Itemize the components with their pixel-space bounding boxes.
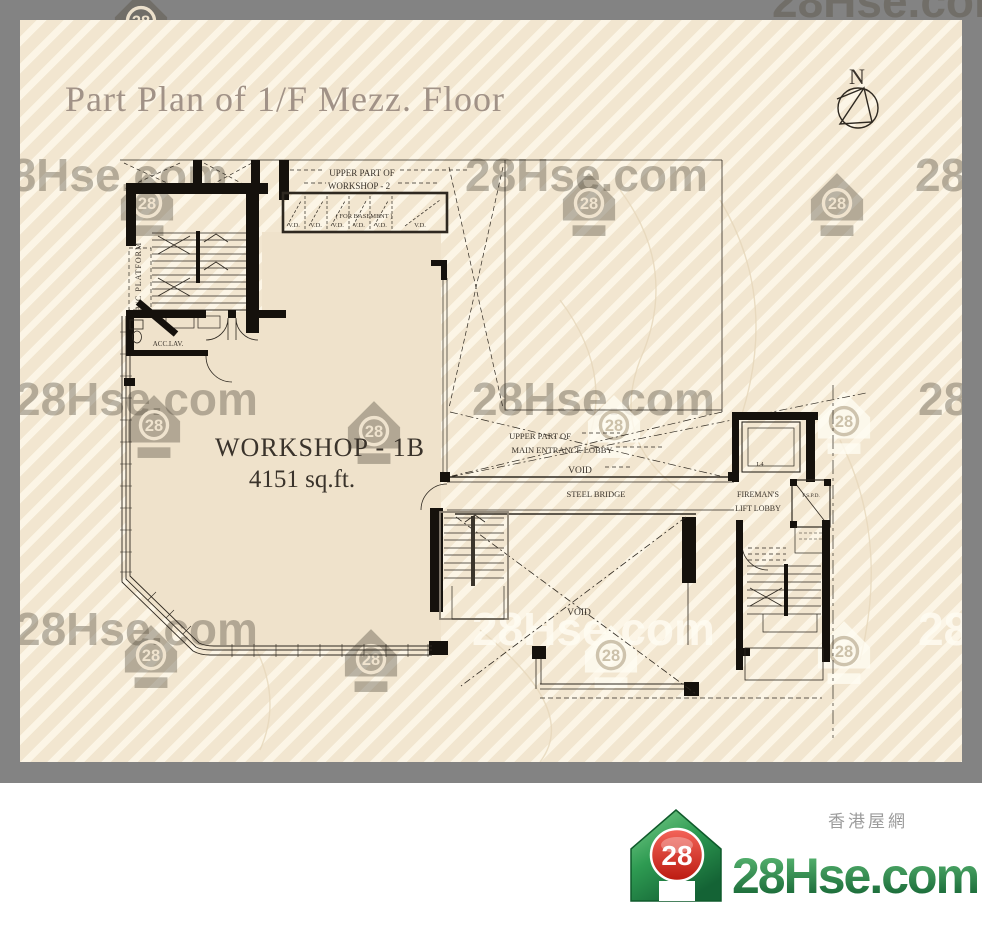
logo-badge-number: 28 (661, 840, 692, 871)
building-title: 江博士中心 Dr. Kong Centre (10, 788, 487, 842)
upper-lobby-label-1: UPPER PART OF (509, 431, 571, 441)
fireman-lobby-label-1: FIREMAN'S (737, 490, 779, 499)
compass-north-label: N (849, 64, 865, 89)
site-logo[interactable]: 28 28Hse.com 香港屋網 (606, 783, 982, 931)
void-lower-label: VOID (567, 608, 591, 618)
lift-l4-label: L4 (756, 461, 764, 468)
workshop-name-label: WORKSHOP - 1B (215, 433, 425, 462)
upper-workshop2-label-2: WORKSHOP - 2 (328, 181, 390, 191)
plan-frame: 2828Hse.com 28Hse.com28Hse.com28Hse.com2… (0, 0, 982, 783)
stairs-mid (440, 512, 508, 619)
acc-lav-room: ACC.LAV. (124, 310, 286, 386)
vd-label: V.D. (310, 222, 322, 229)
logo-site-name: 28Hse.com (732, 848, 978, 904)
acc-lav-label: ACC.LAV. (153, 340, 184, 348)
workshop-area-label: 4151 sq.ft. (249, 466, 355, 493)
workshop-walls (421, 260, 448, 655)
vd-duct-box: UPPER PART OF WORKSHOP - 2 ( FOR BASEMEN… (283, 168, 468, 232)
fspd-label: F.S.P.D. (802, 493, 820, 499)
workshop-room: WORKSHOP - 1B 4151 sq.ft. (215, 433, 425, 493)
steel-bridge-label: STEEL BRIDGE (567, 489, 626, 499)
vd-label: V.D. (332, 222, 344, 229)
void-upper-label: VOID (568, 466, 592, 476)
fireman-lobby-label-2: LIFT LOBBY (735, 504, 781, 513)
fireman-lift-lobby: L4 FIREMAN'S LIFT LOBBY F.S.P.D. (732, 385, 833, 738)
building-address: 青山道550號 (10, 835, 169, 875)
compass: N (837, 64, 878, 128)
upper-lobby-label-2: MAIN ENTRANCE LOBBY (511, 445, 612, 455)
plan-drawing: N A/C PLATFORM (20, 20, 962, 762)
vd-label: V.D. (375, 222, 387, 229)
footer: 江博士中心 Dr. Kong Centre 青山道550號 江博士中心 1樓閣樓… (0, 783, 982, 931)
upper-workshop2-label-1: UPPER PART OF (329, 168, 395, 178)
logo-house-icon: 28 (631, 810, 721, 901)
vd-label: V.D. (288, 222, 300, 229)
logo-site-name-chinese: 香港屋網 (828, 812, 908, 831)
plan-panel: 28Hse.com28Hse.com28Hse.com28Hse.com28Hs… (20, 20, 962, 762)
steel-bridge: STEEL BRIDGE (440, 472, 737, 510)
vd-label: V.D. (353, 222, 365, 229)
for-basement-label: ( FOR BASEMENT ) (336, 213, 393, 220)
footer-green-bar: 江博士中心 Dr. Kong Centre 青山道550號 江博士中心 1樓閣樓 (0, 783, 612, 931)
stairs-bottom-right (736, 520, 830, 680)
building-floor: 江博士中心 1樓閣樓 (10, 875, 240, 912)
vd-label: V.D. (414, 222, 426, 229)
entrance-lobby-void: UPPER PART OF MAIN ENTRANCE LOBBY VOID (449, 160, 866, 477)
